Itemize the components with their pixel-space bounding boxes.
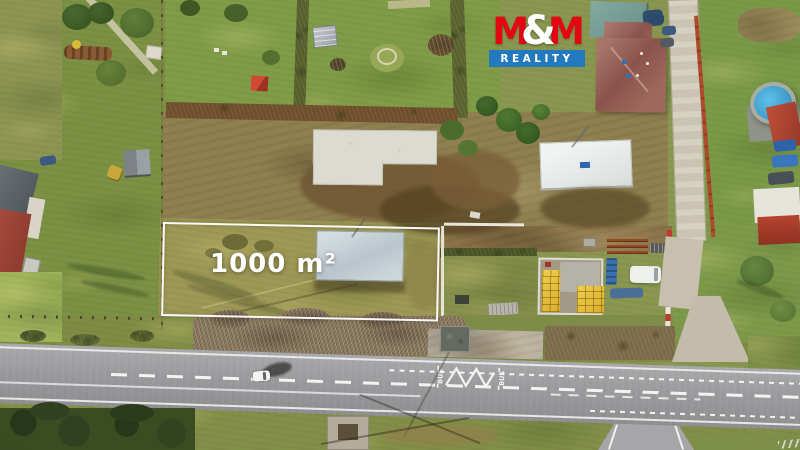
skylight-2 [626,74,631,78]
conifer-1 [476,96,498,116]
tree-olive [96,60,126,86]
car-house-2 [662,26,677,36]
hedge-bump-1 [30,402,70,420]
car-house-3 [660,37,675,47]
roof-vent-dots [640,52,643,55]
firepit-ring [377,48,397,65]
logo-wordmark: M & M [487,12,587,50]
silver-plank-pile [488,302,519,316]
verge-bush-3 [130,330,154,342]
car-windshield [263,372,267,380]
bush-brown-1 [330,58,346,71]
mm-reality-logo: M & M REALITY [487,12,587,68]
logo-letter-m-second: M [548,13,582,50]
car-blue-1 [773,139,796,152]
tree-dark-1 [62,4,92,30]
hedge-bottom-left [0,408,195,450]
white-car [253,370,271,381]
zigzag-line [446,368,495,387]
conifer-3 [516,122,540,144]
tree-by-slab-2 [458,140,478,156]
pallet-stack-right [577,286,604,313]
tree-by-slab-1 [440,120,464,140]
yellow-umbrella [72,40,81,49]
tree-light-1 [120,8,154,38]
car-blue-2 [772,154,799,168]
aerial-photo: BUS BUS 1000 m² M & M REALITY [0,0,800,450]
concrete-block [583,238,596,247]
red-playhouse [250,75,268,91]
bus-marking-text-right: BUS [498,371,507,386]
dirt-patch-top-right [738,8,800,42]
greenhouse [312,25,338,48]
neighbour-wall-west [441,226,444,326]
grass-right-of-junction [748,336,800,370]
bus-stop-zigzag-marking: BUS BUS [434,364,507,392]
beehive-dots [214,48,219,52]
red-roof-corner [757,215,800,245]
bush-brown-2 [428,34,454,56]
bush-top-2 [224,4,248,22]
pallet-stack-left [542,270,561,312]
tree-right-lawn-2 [770,300,796,322]
dark-bin [455,295,469,304]
blue-tarp [610,287,643,298]
shell-red-door [545,262,551,267]
scrub-band-right [545,326,675,360]
tree-garden-mid [262,50,280,65]
logo-ampersand: & [521,11,553,51]
car-house-1 [648,14,665,25]
logo-reality-text: REALITY [500,53,573,65]
dirt-patch-3 [430,150,520,210]
plot-area-label: 1000 m² [210,249,337,279]
bush-top-1 [180,0,200,16]
garage-roof-label [580,162,590,168]
rusty-steel-beams [607,239,648,257]
tree-dark-2 [88,2,114,24]
van-windshield [654,268,658,281]
gray-shed [123,149,151,178]
dirt-below-garage [540,188,650,228]
verge-bush-2 [70,334,100,346]
verge-bush-1 [20,330,46,342]
hedge-bump-2 [110,404,154,422]
foundation-slab-wing [313,160,383,186]
skylight-1 [622,60,627,64]
house-roof-main [595,37,666,112]
conifer-4 [532,104,550,120]
orchard-strip-left [0,0,62,160]
road-junction-dashed-line [551,394,701,401]
flowerbed-row [64,45,113,61]
blue-machine [606,258,618,285]
bus-shelter [440,326,470,353]
